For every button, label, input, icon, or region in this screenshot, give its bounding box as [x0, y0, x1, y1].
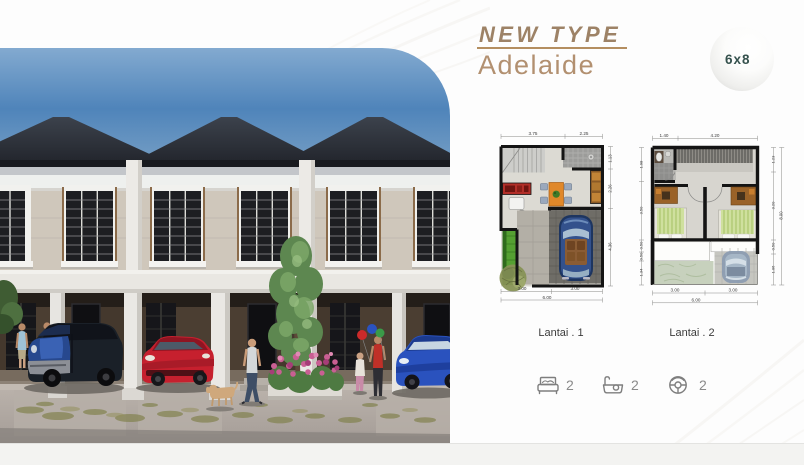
svg-text:1.40: 1.40: [660, 133, 669, 138]
svg-text:1.06: 1.06: [771, 265, 776, 274]
svg-text:4.20: 4.20: [711, 133, 720, 138]
svg-text:3.50: 3.50: [639, 206, 644, 215]
svg-text:3.75: 3.75: [529, 131, 538, 136]
svg-text:3.00: 3.00: [571, 286, 580, 291]
svg-text:1.23: 1.23: [771, 155, 776, 164]
svg-text:0.50: 0.50: [639, 252, 644, 261]
svg-text:0.50: 0.50: [771, 242, 776, 251]
svg-text:6.00: 6.00: [692, 298, 701, 303]
svg-text:8.00: 8.00: [779, 211, 784, 220]
svg-text:1.98: 1.98: [639, 160, 644, 169]
svg-text:1.34: 1.34: [639, 268, 644, 277]
svg-text:3.00: 3.00: [671, 288, 680, 293]
svg-text:0.50: 0.50: [639, 241, 644, 250]
svg-text:6.00: 6.00: [543, 295, 552, 300]
svg-text:2.26: 2.26: [608, 184, 613, 193]
svg-text:4.36: 4.36: [608, 242, 613, 251]
svg-text:3.00: 3.00: [729, 288, 738, 293]
svg-text:1.13: 1.13: [608, 154, 613, 163]
svg-text:3.00: 3.00: [518, 286, 527, 291]
svg-text:3.20: 3.20: [771, 201, 776, 210]
svg-text:2.25: 2.25: [580, 131, 589, 136]
